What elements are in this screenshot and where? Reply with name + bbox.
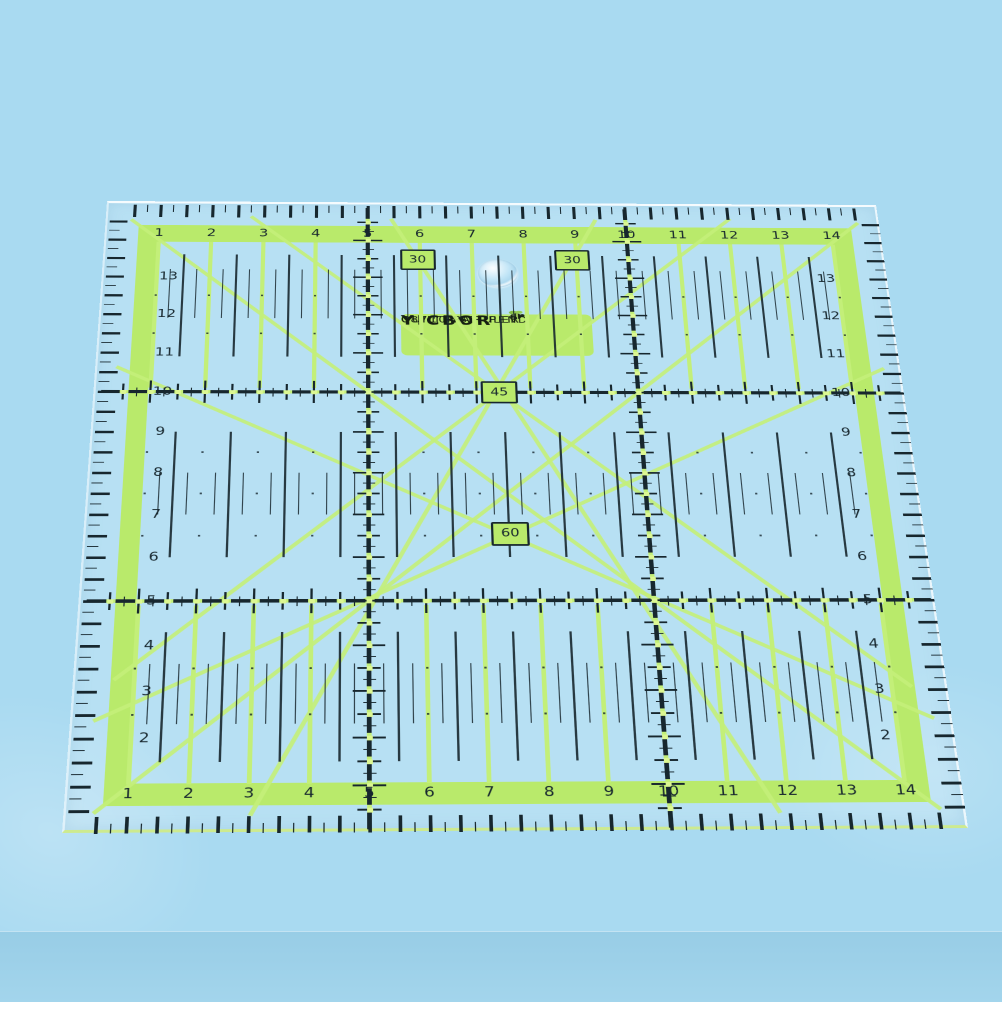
grid-dash-half xyxy=(798,631,815,760)
cross-tick xyxy=(642,524,654,525)
edge-tick-right xyxy=(941,723,953,725)
edge-tick-top xyxy=(713,208,715,215)
edge-tick-right xyxy=(875,269,885,270)
grid-dash-half xyxy=(232,254,238,356)
edge-tick-left xyxy=(68,810,89,813)
grid-dot xyxy=(190,713,193,715)
edge-tick-bottom xyxy=(818,813,823,830)
grid-dot xyxy=(207,294,210,296)
edge-tick-right xyxy=(880,353,898,355)
edge-tick-right xyxy=(869,278,887,280)
edge-tick-right xyxy=(944,746,956,748)
edge-tick-right xyxy=(925,610,936,611)
grid-green-dot xyxy=(366,759,372,764)
scale-number: 5 xyxy=(354,786,385,800)
cross-tick xyxy=(638,462,650,463)
grid-dot xyxy=(755,492,758,494)
table-surface-shadow xyxy=(0,931,1002,1002)
cross-tick xyxy=(362,524,374,525)
grid-dot xyxy=(311,492,314,494)
cross-tick xyxy=(362,546,374,547)
grid-green-dot xyxy=(366,390,371,394)
grid-dot xyxy=(750,452,753,454)
grid-green-dot xyxy=(633,352,639,356)
edge-tick-top xyxy=(662,207,664,214)
grid-green-dot xyxy=(623,222,628,226)
grid-green-dot xyxy=(107,599,113,603)
grid-dot xyxy=(131,714,134,716)
edge-tick-top xyxy=(405,206,407,213)
grid-dot xyxy=(420,333,423,335)
cross-tick xyxy=(655,701,668,703)
edge-tick-right xyxy=(900,492,919,494)
edge-tick-bottom xyxy=(337,816,341,833)
grid-dash-quarter xyxy=(324,664,326,724)
edge-tick-right xyxy=(941,781,961,784)
grid-dash-half xyxy=(169,432,177,558)
edge-tick-left xyxy=(107,257,125,259)
edge-tick-bottom xyxy=(609,814,614,831)
grid-dot xyxy=(256,451,259,453)
edge-tick-bottom xyxy=(639,814,644,831)
cross-tick xyxy=(496,596,498,606)
cross-tick xyxy=(582,596,584,606)
scale-number: 3 xyxy=(233,787,265,801)
edge-tick-right xyxy=(921,588,932,589)
cross-tick xyxy=(659,747,672,749)
grid-green-dot xyxy=(509,598,515,602)
angle-marker-30: 30 xyxy=(400,249,436,270)
scale-number: 8 xyxy=(143,467,173,479)
edge-tick-left xyxy=(78,667,98,670)
cross-tick xyxy=(363,589,376,590)
grid-green-vertical xyxy=(481,605,491,782)
edge-tick-top xyxy=(636,207,638,214)
edge-tick-bottom xyxy=(353,822,355,832)
edge-tick-right xyxy=(875,315,893,317)
grid-dot xyxy=(143,492,146,494)
grid-dash-quarter xyxy=(354,270,356,319)
grid-green-dot xyxy=(537,598,543,602)
edge-tick-bottom xyxy=(384,822,386,832)
grid-dash-quarter xyxy=(759,662,767,722)
edge-tick-right xyxy=(934,734,954,737)
grid-green-dot xyxy=(366,450,372,454)
grid-dash-quarter xyxy=(220,269,224,318)
edge-tick-top xyxy=(354,206,356,213)
edge-tick-left xyxy=(83,600,103,603)
scale-number: 13 xyxy=(154,271,182,282)
brand-label: YICBOR QUILTING RULER 08710 PAT. PEND xyxy=(401,314,594,356)
grid-dot xyxy=(251,667,254,669)
edge-tick-bottom xyxy=(201,823,203,833)
edge-tick-top xyxy=(546,207,550,219)
grid-green-dot xyxy=(309,599,315,603)
grid-dot xyxy=(133,667,136,669)
frame-band-top xyxy=(138,225,854,245)
grid-dash-half xyxy=(569,631,578,760)
scale-number: 11 xyxy=(664,230,692,240)
grid-green-dot xyxy=(594,598,600,602)
edge-tick-top xyxy=(224,205,226,212)
cross-tick xyxy=(362,249,373,250)
grid-green-dot xyxy=(366,534,372,538)
edge-tick-right xyxy=(931,654,943,655)
cross-tick xyxy=(468,596,470,606)
edge-tick-bottom xyxy=(488,815,492,832)
grid-dash-half xyxy=(226,432,232,557)
grid-green-vertical xyxy=(307,605,313,783)
grid-dot xyxy=(864,493,867,495)
grid-dash-half xyxy=(282,432,287,557)
scale-number: 8 xyxy=(533,785,565,799)
grid-green-dot xyxy=(648,555,654,559)
cross-tick xyxy=(647,589,660,590)
edge-tick-top xyxy=(520,207,524,219)
grid-dot xyxy=(805,452,808,454)
edge-tick-top xyxy=(159,205,163,217)
edge-tick-right xyxy=(912,577,931,580)
scale-number: 12 xyxy=(715,231,743,241)
grid-green-dot xyxy=(284,390,290,394)
edge-tick-left xyxy=(100,361,111,362)
grid-green-dot xyxy=(338,390,343,394)
cross-tick xyxy=(362,343,374,344)
scale-number: 3 xyxy=(250,228,277,238)
grid-dash-half xyxy=(340,255,343,357)
grid-green-dot xyxy=(120,390,126,394)
edge-tick-bottom xyxy=(474,822,476,832)
scale-number: 7 xyxy=(141,509,171,521)
grid-dot xyxy=(532,451,535,453)
grid-green-dot xyxy=(634,371,640,375)
grid-dot xyxy=(477,451,480,453)
edge-tick-left xyxy=(93,451,112,453)
edge-tick-bottom xyxy=(877,813,883,830)
grid-green-dot xyxy=(365,294,370,298)
edge-tick-top xyxy=(340,206,343,218)
grid-green-vertical xyxy=(424,605,431,783)
cross-tick xyxy=(641,503,653,504)
edge-tick-right xyxy=(867,260,885,262)
grid-dash-quarter xyxy=(557,663,562,723)
grid-dash-half xyxy=(278,632,283,762)
cross-tick xyxy=(626,305,638,306)
cross-tick xyxy=(724,595,727,605)
grid-green-dot xyxy=(663,758,669,763)
edge-tick-right xyxy=(928,632,940,633)
cross-tick xyxy=(362,421,374,422)
grid-dash-quarter xyxy=(667,271,673,319)
edge-tick-left xyxy=(108,238,126,240)
grid-dash-quarter xyxy=(787,662,795,722)
edge-tick-left xyxy=(109,230,120,231)
cross-tick xyxy=(408,388,410,397)
scale-number: 9 xyxy=(561,230,588,240)
scene: YICBOR QUILTING RULER 08710 PAT. PEND 12… xyxy=(0,0,1002,1002)
grid-green-dot xyxy=(366,577,372,581)
grid-green-dot xyxy=(566,598,572,602)
cross-tick xyxy=(267,596,269,606)
frame-band-bottom xyxy=(103,780,931,806)
edge-tick-bottom xyxy=(109,824,112,834)
grid-dot xyxy=(192,667,195,669)
grid-dot xyxy=(542,666,545,668)
grid-dot xyxy=(311,535,314,537)
scale-number: 11 xyxy=(712,785,744,799)
grid-green-dot xyxy=(229,390,235,394)
grid-green-dot xyxy=(365,370,370,374)
grid-dot xyxy=(830,665,833,667)
grid-green-vertical xyxy=(677,244,694,389)
edge-tick-right xyxy=(861,224,879,226)
edge-tick-bottom xyxy=(728,814,733,831)
edge-tick-bottom xyxy=(307,816,311,833)
edge-tick-left xyxy=(105,285,116,286)
grid-dash-quarter xyxy=(712,473,718,514)
edge-tick-bottom xyxy=(924,819,927,829)
edge-tick-left xyxy=(103,313,121,315)
edge-tick-left xyxy=(89,513,108,516)
edge-tick-left xyxy=(74,726,86,728)
scale-number: 1 xyxy=(145,228,173,238)
edge-tick-left xyxy=(92,471,111,473)
cross-tick xyxy=(245,387,247,396)
grid-green-dot xyxy=(716,391,722,395)
edge-tick-bottom xyxy=(398,815,402,832)
grid-dot xyxy=(836,711,839,713)
grid-dot xyxy=(473,333,476,335)
edge-tick-bottom xyxy=(518,815,522,832)
grid-green-dot xyxy=(366,666,372,671)
scale-number: 13 xyxy=(767,231,795,241)
grid-dot xyxy=(786,296,789,298)
cross-tick xyxy=(181,596,183,606)
grid-dash-half xyxy=(705,257,717,358)
grid-green-dot xyxy=(642,471,648,475)
edge-tick-right xyxy=(918,567,929,568)
cross-tick xyxy=(632,382,644,383)
edge-tick-bottom xyxy=(579,814,584,831)
edge-tick-left xyxy=(98,381,109,382)
grid-green-dot xyxy=(420,390,425,394)
grid-dot xyxy=(249,713,252,715)
edge-tick-right xyxy=(872,297,890,299)
edge-tick-right xyxy=(897,472,916,474)
grid-green-dot xyxy=(222,599,228,603)
cross-tick xyxy=(758,388,761,397)
edge-tick-right xyxy=(886,392,904,394)
grid-dot xyxy=(870,534,873,536)
cross-tick xyxy=(362,482,374,483)
angle-marker-30: 30 xyxy=(554,250,591,271)
cross-tick xyxy=(597,388,599,397)
edge-tick-bottom xyxy=(216,816,220,833)
grid-dash-quarter xyxy=(406,270,408,319)
grid-dash-quarter xyxy=(294,664,297,724)
cross-tick xyxy=(362,324,374,325)
edge-tick-top xyxy=(852,208,857,220)
cross-tick xyxy=(657,724,670,726)
grid-dash-quarter xyxy=(537,270,541,319)
scale-number: 5 xyxy=(136,595,167,607)
cross-tick xyxy=(218,387,220,396)
scale-number: 13 xyxy=(812,274,840,284)
grid-dot xyxy=(254,535,257,537)
grid-green-dot xyxy=(764,598,770,602)
scale-number: 2 xyxy=(870,729,902,742)
grid-dot xyxy=(152,332,155,334)
grid-dash-quarter xyxy=(459,270,462,319)
edge-tick-bottom xyxy=(788,813,793,830)
edge-tick-top xyxy=(302,206,304,213)
scale-number: 7 xyxy=(474,786,506,800)
grid-dot xyxy=(587,451,590,453)
edge-tick-top xyxy=(418,206,421,218)
edge-tick-top xyxy=(738,208,740,215)
edge-tick-top xyxy=(147,205,149,212)
grid-green-dot xyxy=(474,390,480,394)
edge-tick-bottom xyxy=(262,823,264,833)
edge-tick-right xyxy=(877,334,895,336)
edge-tick-left xyxy=(73,750,85,752)
edge-tick-top xyxy=(801,208,806,220)
grid-green-dot xyxy=(366,410,371,414)
scale-number: 2 xyxy=(172,787,204,801)
edge-tick-right xyxy=(912,524,923,525)
edge-tick-left xyxy=(90,503,101,504)
edge-tick-left xyxy=(103,323,114,324)
edge-tick-top xyxy=(840,208,843,215)
edge-tick-top xyxy=(199,205,201,212)
edge-tick-left xyxy=(71,774,83,776)
cross-tick xyxy=(650,633,663,634)
grid-dot xyxy=(427,713,430,715)
edge-tick-bottom xyxy=(937,813,943,830)
grid-dash-quarter xyxy=(685,473,690,514)
edge-tick-left xyxy=(80,645,100,648)
grid-dot xyxy=(485,712,488,714)
edge-tick-left xyxy=(72,761,93,764)
scale-number: 4 xyxy=(133,639,164,652)
grid-dash-quarter xyxy=(433,270,436,319)
grid-dot xyxy=(198,535,201,537)
grid-green-dot xyxy=(480,598,486,602)
edge-tick-top xyxy=(789,208,791,215)
grid-dot xyxy=(773,666,776,668)
grid-green-dot xyxy=(630,314,636,318)
edge-tick-bottom xyxy=(185,816,189,833)
grid-green-dot xyxy=(637,410,643,414)
grid-green-dot xyxy=(366,512,372,516)
cross-tick xyxy=(645,567,657,568)
cross-tick xyxy=(411,596,413,606)
scale-number: 5 xyxy=(354,229,381,239)
grid-dot xyxy=(791,334,794,336)
grid-dot xyxy=(480,534,483,536)
grid-dash-quarter xyxy=(265,664,268,724)
edge-tick-bottom xyxy=(232,823,234,833)
edge-tick-left xyxy=(75,714,95,717)
grid-dot xyxy=(703,534,706,536)
grid-dash-quarter xyxy=(794,473,801,514)
cross-tick xyxy=(362,382,374,383)
edge-tick-right xyxy=(945,805,966,808)
angle-marker-45: 45 xyxy=(481,381,519,403)
grid-dot xyxy=(894,711,897,713)
grid-dash-quarter xyxy=(547,473,551,515)
scale-number: 6 xyxy=(847,551,878,563)
edge-tick-left xyxy=(95,430,114,432)
edge-tick-right xyxy=(873,251,883,252)
edge-tick-bottom xyxy=(171,823,173,833)
edge-tick-top xyxy=(687,208,689,215)
edge-tick-left xyxy=(91,482,102,483)
cross-tick xyxy=(272,387,274,396)
grid-dash-half xyxy=(219,632,226,762)
grid-dash-quarter xyxy=(247,269,250,318)
edge-tick-bottom xyxy=(505,822,507,832)
grid-dash-quarter xyxy=(499,663,503,723)
grid-green-dot xyxy=(423,598,429,602)
edge-tick-right xyxy=(897,422,908,423)
edge-tick-bottom xyxy=(293,823,295,833)
grid-dot xyxy=(419,295,422,297)
edge-tick-top xyxy=(814,208,817,215)
grid-green-dot xyxy=(365,221,370,225)
grid-green-dot xyxy=(651,598,657,602)
grid-dash-half xyxy=(741,631,756,760)
grid-dash-quarter xyxy=(235,664,239,724)
grid-dash-quarter xyxy=(797,272,805,320)
edge-tick-top xyxy=(648,207,652,219)
cross-tick xyxy=(327,388,329,397)
edge-tick-bottom xyxy=(549,815,553,832)
grid-dash-quarter xyxy=(845,662,854,722)
edge-tick-bottom xyxy=(458,815,462,832)
grid-green-dot xyxy=(679,598,685,602)
grid-dash-quarter xyxy=(589,271,594,320)
edge-tick-bottom xyxy=(124,817,129,834)
cross-tick xyxy=(362,362,374,363)
angle-guide-line xyxy=(92,367,885,723)
grid-dot xyxy=(309,713,312,715)
grid-dash-half xyxy=(776,432,792,556)
edge-tick-right xyxy=(938,757,958,760)
scale-number: 11 xyxy=(150,347,179,358)
grid-dash-half xyxy=(178,254,185,356)
grid-green-dot xyxy=(689,391,695,395)
scale-number: 4 xyxy=(858,638,889,651)
cross-tick xyxy=(811,389,814,398)
grid-green-dot xyxy=(366,598,372,602)
grid-dash-half xyxy=(756,257,769,358)
grid-dot xyxy=(206,332,209,334)
grid-green-dot xyxy=(638,430,644,434)
edge-tick-top xyxy=(132,205,136,217)
edge-tick-bottom xyxy=(745,820,748,830)
edge-tick-left xyxy=(102,332,120,334)
edge-tick-top xyxy=(211,205,215,217)
grid-green-dot xyxy=(661,734,667,739)
grid-dash-quarter xyxy=(185,473,189,515)
edge-tick-top xyxy=(826,208,831,220)
edge-tick-left xyxy=(86,556,106,559)
edge-tick-right xyxy=(909,555,928,558)
grid-dot xyxy=(255,492,258,494)
edge-tick-right xyxy=(938,700,950,702)
grid-dash-half xyxy=(512,631,519,760)
